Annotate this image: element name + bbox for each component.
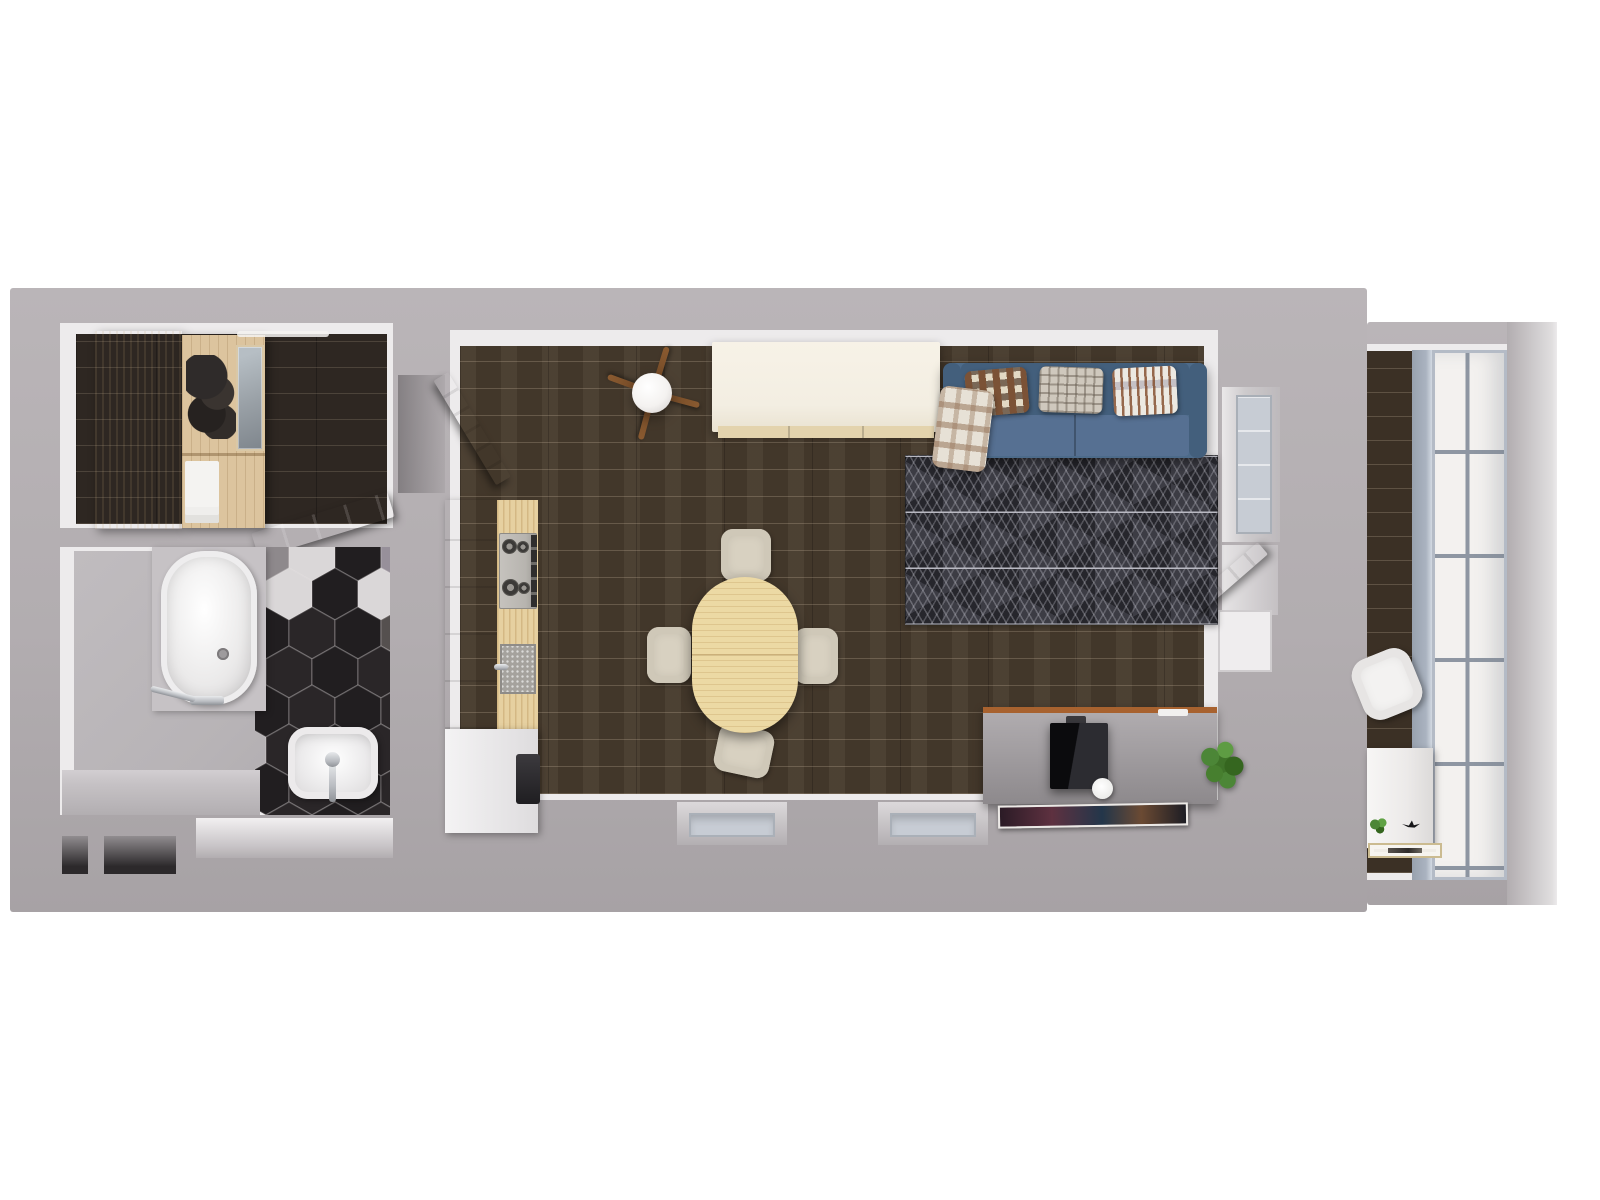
potted-plant	[1194, 738, 1248, 792]
shelf-divider	[182, 453, 265, 456]
bathroom-window-recess	[196, 818, 393, 858]
leaning-poster	[998, 802, 1188, 828]
wardrobe	[95, 331, 182, 529]
living-window-well-right	[878, 802, 988, 845]
frame-art	[1388, 848, 1422, 853]
open-shelf-unit	[182, 335, 265, 528]
dining-chair-top	[721, 529, 771, 581]
basin-tap	[325, 752, 340, 767]
picture-frame	[1368, 843, 1442, 858]
hallway-doorway	[398, 375, 445, 493]
sofa-seat	[961, 415, 1189, 456]
window-glass	[689, 813, 775, 837]
window-glass	[1236, 395, 1272, 534]
dining-chair-right	[794, 628, 838, 684]
area-rug	[905, 455, 1218, 625]
burner	[518, 582, 530, 594]
throw-blanket	[931, 385, 995, 473]
gas-hob	[499, 533, 537, 609]
wall-niche-wide	[104, 836, 176, 874]
window-glass	[890, 813, 976, 837]
plant-sprig	[1369, 818, 1389, 834]
island-cabinet	[712, 342, 940, 432]
bathtub	[161, 551, 257, 705]
island-shelf	[718, 426, 934, 438]
tub-drain	[217, 648, 229, 660]
dark-appliance	[516, 754, 540, 804]
balcony-door-threshold	[1218, 610, 1272, 672]
living-right-window-recess	[1222, 387, 1280, 542]
sofa-armrest-right	[1189, 363, 1207, 458]
dining-chair-left	[647, 627, 691, 683]
balcony-outer-wall	[1507, 322, 1557, 905]
wall-niche-small	[62, 836, 88, 874]
bathroom-ledge	[62, 770, 260, 815]
cushion-plaid	[1038, 366, 1104, 414]
hall-ceiling-light	[237, 331, 329, 337]
basin-tap-stem	[329, 762, 336, 802]
balcony-glazing	[1432, 350, 1507, 880]
living-window-well-left	[677, 802, 787, 845]
floor-plan-render	[0, 0, 1600, 1200]
folded-linens	[185, 461, 219, 523]
burner	[502, 579, 519, 596]
paper-roll	[1092, 778, 1113, 799]
cushion-stripe	[1112, 365, 1178, 416]
kitchen-cabinet-fronts	[445, 500, 497, 729]
remote-control	[1158, 709, 1188, 716]
kitchen-faucet	[494, 664, 508, 670]
ceiling-lamp-globe	[632, 373, 672, 413]
hanging-clothes	[186, 355, 238, 439]
sofa	[943, 363, 1207, 458]
glass-cabinet-door	[236, 345, 264, 451]
hob-controls	[531, 535, 537, 607]
burner	[502, 539, 517, 554]
burner	[517, 541, 529, 553]
dining-table	[692, 577, 798, 733]
